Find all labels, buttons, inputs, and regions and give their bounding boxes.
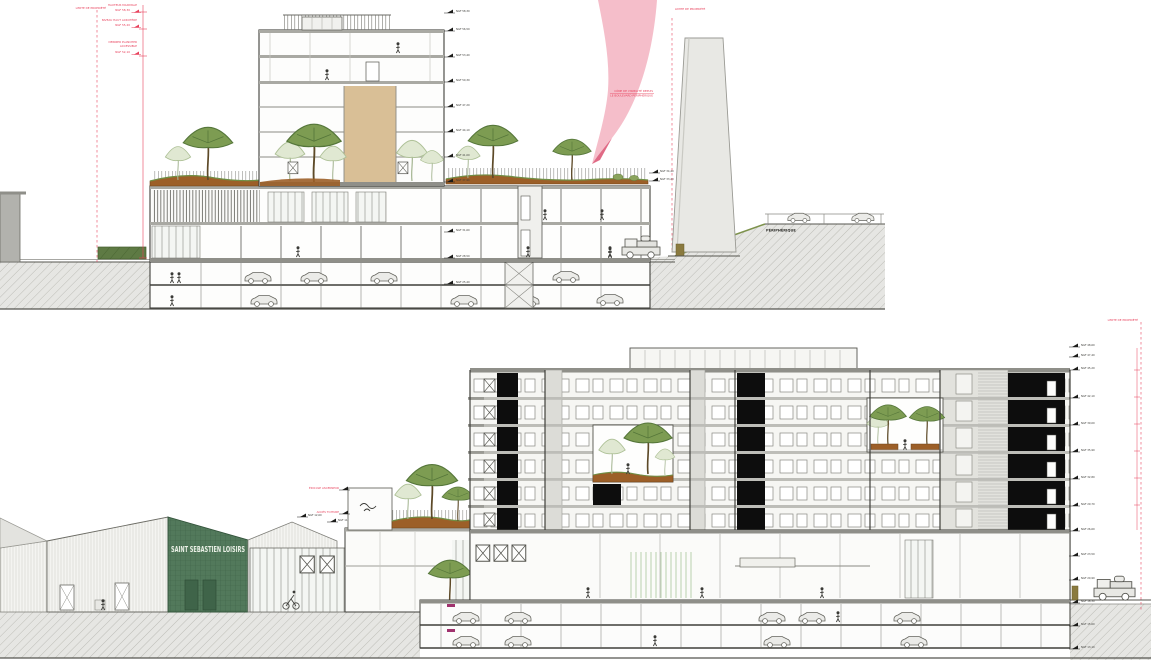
ground-floor [470, 530, 1070, 600]
level-label: NGF 39,00 [1081, 421, 1095, 425]
annotation-value: NGF 55,20 [115, 23, 130, 27]
ribbon-note: CÔNE DE VISIBILITÉ DEPUIS [614, 88, 653, 93]
right-limit-annotations: LIMITE DE PROPRIÉTÉ [1108, 317, 1141, 612]
lower-cross-section: SAINT SEBASTIEN LOISIRS NGF 12,60 NGF 11… [0, 317, 1151, 660]
podium-edge-flags: NGF 34,40 NGF 33,20 [649, 169, 674, 181]
drawing-sheet: NGF 58,30 NGF 56,50 NGF 53,40 NGF 50,30 … [0, 0, 1151, 662]
level-label: NGF 25,40 [456, 280, 470, 284]
level-label: NGF 45,20 [1081, 366, 1095, 370]
level-label: NGF 53,40 [456, 53, 470, 57]
height-annotations: LIMITE DE PROPRIÉTÉ HAUTEUR MAXIMALE NGF… [76, 3, 147, 262]
sky-garden-2 [867, 398, 945, 452]
roof-garden-left [150, 127, 262, 186]
level-label: NGF 32,80 [1081, 475, 1095, 479]
level-label: NGF 26,60 [1081, 527, 1095, 531]
fire-truck [622, 236, 660, 258]
property-limit-label-left: LIMITE DE PROPRIÉTÉ [76, 5, 107, 10]
warehouses: SAINT SEBASTIEN LOISIRS NGF 12,60 NGF 11… [0, 513, 352, 612]
bollard [1072, 586, 1078, 600]
level-label: NGF 28,50 [456, 254, 470, 258]
roof-pavilion [348, 488, 392, 530]
winter-garden-wall [344, 86, 396, 182]
visibility-ribbon: CÔNE DE VISIBILITÉ DEPUIS LE BOULEVARD P… [592, 0, 657, 164]
warehouse-sign: SAINT SEBASTIEN LOISIRS [171, 545, 245, 554]
annotation-label: HAUTEUR MAXIMALE [108, 3, 137, 7]
earth-left [0, 262, 150, 309]
roof-note: ACCÈS TOITURE [317, 509, 340, 514]
level-label: NGF 58,30 [456, 9, 470, 13]
existing-building-fragment [0, 194, 20, 262]
penthouse [630, 348, 857, 370]
upper-cross-section: NGF 58,30 NGF 56,50 NGF 53,40 NGF 50,30 … [0, 0, 885, 309]
level-label: NGF 41,00 [456, 153, 470, 157]
podium-top [150, 186, 650, 262]
ribbon-note: LE BOULEVARD PÉRIPHÉRIQUE [610, 93, 653, 98]
level-label: NGF 42,10 [1081, 394, 1095, 398]
annotation-value: NGF 58,30 [115, 8, 130, 12]
main-building [420, 348, 1070, 648]
level-label: NGF 20,90 [1081, 576, 1095, 580]
level-label: NGF 18,30 [1081, 599, 1095, 603]
building-level-flags: NGF 48,60 NGF 47,40 NGF 45,20 NGF 42,10 … [1069, 343, 1095, 649]
level-label: NGF 44,10 [456, 128, 470, 132]
annotation-label: NIVEAU HAUT ACROTÈRE [102, 17, 137, 22]
level-label: NGF 23,50 [1081, 552, 1095, 556]
earth-right-bottom [1070, 604, 1151, 660]
tower [259, 15, 444, 186]
level-label: NGF 35,90 [1081, 448, 1095, 452]
level-label: NGF 13,10 [1081, 645, 1095, 649]
level-label: NGF 37,90 [456, 178, 470, 182]
basement-parking-bottom [420, 600, 1070, 648]
annotation-value: NGF 52,10 [115, 50, 130, 54]
curtain-wall [628, 552, 692, 598]
level-label: NGF 48,60 [1081, 343, 1095, 347]
chimney [668, 38, 740, 256]
level-label: NGF 56,50 [456, 27, 470, 31]
sections-svg: NGF 58,30 NGF 56,50 NGF 53,40 NGF 50,30 … [0, 0, 1151, 662]
annotation-label: ACCESSIBLE [120, 44, 137, 48]
property-limit-label-bottom: LIMITE DE PROPRIÉTÉ [1108, 317, 1139, 322]
level-label: NGF 50,30 [456, 78, 470, 82]
property-limit-label-right: LIMITE DE PROPRIÉTÉ [675, 6, 706, 11]
service-truck [1094, 576, 1135, 600]
level-label: NGF 31,60 [456, 228, 470, 232]
existing-building-roof [0, 192, 26, 195]
basement-parking-top [150, 262, 650, 308]
level-label: NGF 29,70 [1081, 502, 1095, 506]
level-label: NGF 47,20 [456, 103, 470, 107]
counter [740, 558, 795, 567]
roof-note: ÉDICULE ASCENSEUR [309, 485, 339, 490]
peripherique-label: PÉRIPHÉRIQUE [766, 228, 796, 233]
level-label: NGF 47,40 [1081, 353, 1095, 357]
level-label: NGF 15,60 [1081, 622, 1095, 626]
roof-garden-right [446, 125, 648, 184]
